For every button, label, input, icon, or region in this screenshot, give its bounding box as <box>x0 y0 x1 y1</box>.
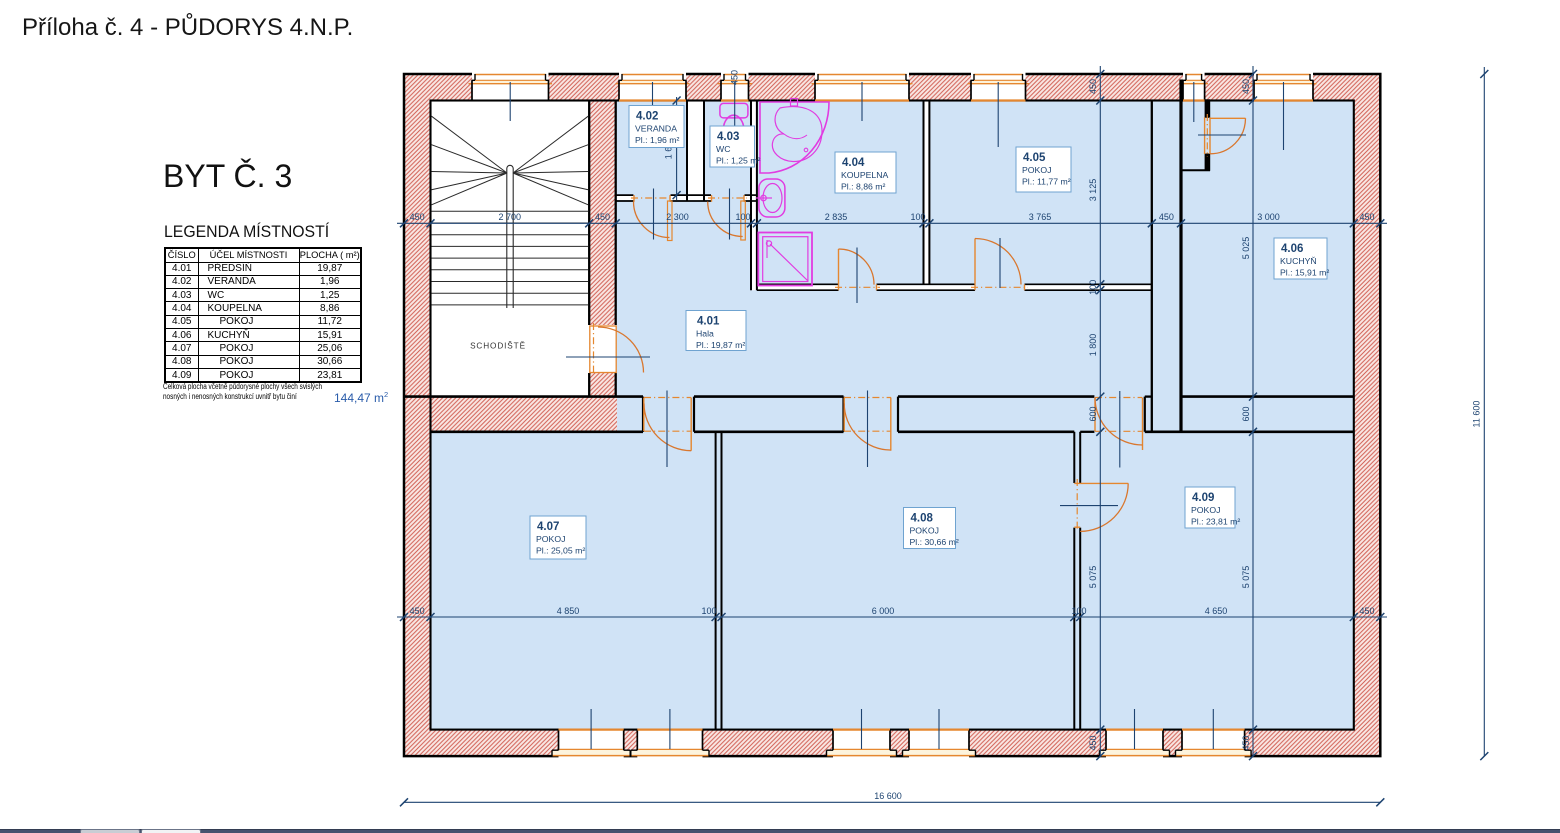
svg-text:KOUPELNA: KOUPELNA <box>841 170 889 180</box>
svg-text:POKOJ: POKOJ <box>910 526 939 536</box>
svg-text:450: 450 <box>1241 735 1251 750</box>
svg-text:4.01: 4.01 <box>697 316 720 328</box>
svg-text:100: 100 <box>1071 606 1086 616</box>
svg-text:POKOJ: POKOJ <box>1022 165 1051 175</box>
svg-text:Pl.: 23,81 m²: Pl.: 23,81 m² <box>1191 517 1240 527</box>
svg-text:3 125: 3 125 <box>1088 179 1098 202</box>
svg-text:450: 450 <box>410 606 425 616</box>
svg-text:POKOJ: POKOJ <box>536 534 565 544</box>
svg-text:2 700: 2 700 <box>499 212 522 222</box>
svg-text:100: 100 <box>701 606 716 616</box>
svg-text:5 025: 5 025 <box>1241 237 1251 260</box>
svg-text:4.03: 4.03 <box>717 131 739 143</box>
svg-text:1 800: 1 800 <box>1088 334 1098 357</box>
svg-text:5 075: 5 075 <box>1088 566 1098 589</box>
svg-text:11 600: 11 600 <box>1472 401 1482 428</box>
svg-text:100: 100 <box>735 212 750 222</box>
svg-text:16 600: 16 600 <box>874 791 902 801</box>
svg-text:600: 600 <box>1241 406 1251 421</box>
svg-text:4.09: 4.09 <box>1192 492 1214 504</box>
svg-text:450: 450 <box>1359 212 1374 222</box>
svg-text:4 650: 4 650 <box>1205 606 1228 616</box>
svg-text:2 300: 2 300 <box>666 212 689 222</box>
svg-text:4 850: 4 850 <box>557 606 580 616</box>
svg-text:Pl.: 19,87 m²: Pl.: 19,87 m² <box>696 340 745 350</box>
svg-text:450: 450 <box>1359 606 1374 616</box>
svg-text:Pl.: 25,05 m²: Pl.: 25,05 m² <box>536 546 585 556</box>
svg-text:Pl.: 15,91 m²: Pl.: 15,91 m² <box>1280 268 1329 278</box>
svg-text:3 765: 3 765 <box>1029 212 1052 222</box>
svg-text:Pl.: 30,66 m²: Pl.: 30,66 m² <box>910 537 959 547</box>
svg-text:100: 100 <box>1088 280 1098 295</box>
svg-text:4.02: 4.02 <box>636 111 658 123</box>
svg-text:VERANDA: VERANDA <box>635 124 677 134</box>
svg-text:450: 450 <box>595 212 610 222</box>
svg-text:600: 600 <box>1088 406 1098 421</box>
svg-text:4.07: 4.07 <box>537 521 559 533</box>
svg-text:450: 450 <box>1159 212 1174 222</box>
svg-text:6 000: 6 000 <box>872 606 895 616</box>
svg-text:Pl.: 1,96 m²: Pl.: 1,96 m² <box>635 135 680 145</box>
svg-text:KUCHYŇ: KUCHYŇ <box>1280 256 1317 266</box>
svg-text:450: 450 <box>1088 79 1098 94</box>
svg-text:Pl.: 11,77 m²: Pl.: 11,77 m² <box>1022 177 1071 187</box>
svg-text:4.04: 4.04 <box>842 157 865 169</box>
svg-text:4.06: 4.06 <box>1281 243 1303 255</box>
svg-text:4.05: 4.05 <box>1023 152 1046 164</box>
svg-text:3 000: 3 000 <box>1257 212 1280 222</box>
svg-text:WC: WC <box>716 144 730 154</box>
svg-text:100: 100 <box>910 212 925 222</box>
svg-text:Pl.: 8,86 m²: Pl.: 8,86 m² <box>841 182 886 192</box>
svg-text:4.08: 4.08 <box>911 513 934 525</box>
svg-text:Hala: Hala <box>696 329 714 339</box>
svg-text:450: 450 <box>410 212 425 222</box>
svg-text:SCHODIŠTĚ: SCHODIŠTĚ <box>470 341 526 351</box>
svg-text:450: 450 <box>1241 79 1251 94</box>
svg-text:2 835: 2 835 <box>825 212 848 222</box>
svg-text:Pl.: 1,25 m²: Pl.: 1,25 m² <box>716 156 761 166</box>
svg-text:5 075: 5 075 <box>1241 566 1251 589</box>
svg-text:450: 450 <box>1088 735 1098 750</box>
svg-text:POKOJ: POKOJ <box>1191 505 1220 515</box>
